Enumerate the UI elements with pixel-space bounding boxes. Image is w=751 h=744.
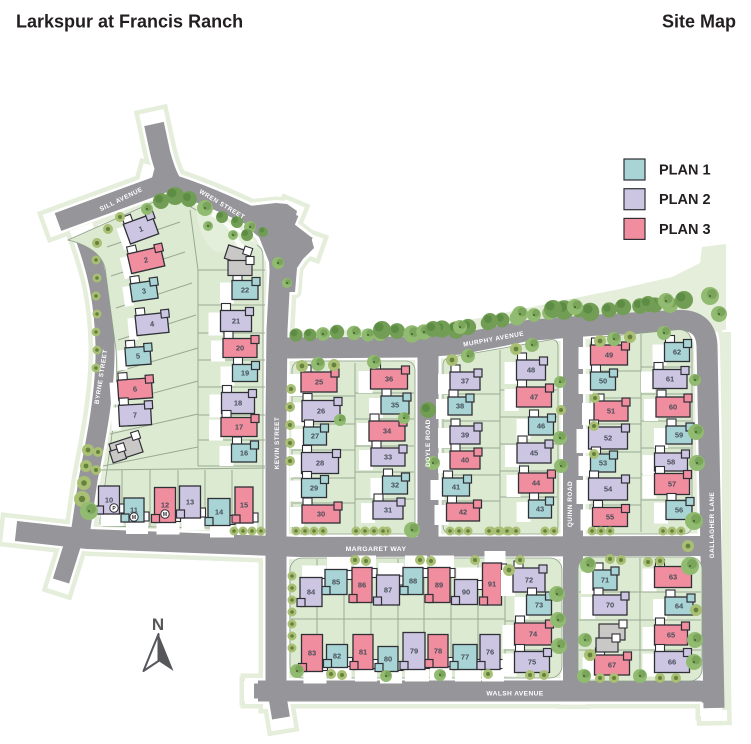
svg-text:15: 15 xyxy=(240,501,248,510)
svg-text:43: 43 xyxy=(536,505,544,514)
svg-text:63: 63 xyxy=(669,573,677,582)
svg-text:80: 80 xyxy=(384,655,392,664)
svg-text:67: 67 xyxy=(608,661,616,670)
svg-text:26: 26 xyxy=(317,407,325,416)
svg-text:18: 18 xyxy=(234,399,242,408)
svg-text:40: 40 xyxy=(461,456,469,465)
svg-text:59: 59 xyxy=(675,431,683,440)
svg-text:12: 12 xyxy=(161,501,169,510)
svg-text:37: 37 xyxy=(461,377,469,386)
svg-text:84: 84 xyxy=(307,588,316,597)
svg-text:78: 78 xyxy=(434,647,442,656)
svg-text:79: 79 xyxy=(410,647,418,656)
svg-text:61: 61 xyxy=(666,375,674,384)
svg-text:39: 39 xyxy=(461,431,469,440)
svg-text:KEVIN STREET: KEVIN STREET xyxy=(274,417,281,470)
svg-text:44: 44 xyxy=(532,479,541,488)
svg-text:62: 62 xyxy=(673,348,681,357)
svg-text:48: 48 xyxy=(527,366,535,375)
svg-text:MARGARET WAY: MARGARET WAY xyxy=(346,546,407,553)
svg-text:83: 83 xyxy=(308,649,316,658)
svg-text:85: 85 xyxy=(332,578,340,587)
svg-text:89: 89 xyxy=(435,581,443,590)
svg-text:91: 91 xyxy=(488,580,496,589)
svg-text:42: 42 xyxy=(459,508,467,517)
svg-text:19: 19 xyxy=(241,369,249,378)
svg-text:33: 33 xyxy=(384,453,392,462)
svg-text:81: 81 xyxy=(359,648,367,657)
svg-text:60: 60 xyxy=(669,403,677,412)
svg-text:17: 17 xyxy=(235,423,243,432)
svg-text:6: 6 xyxy=(133,384,138,393)
svg-text:56: 56 xyxy=(675,506,683,515)
svg-text:QUINN ROAD: QUINN ROAD xyxy=(567,481,574,527)
svg-text:71: 71 xyxy=(601,576,609,585)
svg-text:16: 16 xyxy=(240,449,248,458)
svg-text:32: 32 xyxy=(391,481,399,490)
svg-text:27: 27 xyxy=(311,432,319,441)
svg-text:DOYLE ROAD: DOYLE ROAD xyxy=(425,419,432,467)
svg-text:M: M xyxy=(132,515,136,521)
svg-text:31: 31 xyxy=(384,506,392,515)
svg-text:51: 51 xyxy=(607,407,615,416)
svg-text:28: 28 xyxy=(316,459,324,468)
svg-text:WALSH AVENUE: WALSH AVENUE xyxy=(486,691,543,698)
svg-text:74: 74 xyxy=(529,630,538,639)
svg-text:36: 36 xyxy=(385,375,393,384)
svg-text:GALLAGHER LANE: GALLAGHER LANE xyxy=(709,491,716,558)
svg-text:20: 20 xyxy=(236,344,244,353)
svg-text:72: 72 xyxy=(525,576,533,585)
svg-text:35: 35 xyxy=(391,401,399,410)
svg-text:53: 53 xyxy=(599,459,607,468)
svg-text:PLAN 1: PLAN 1 xyxy=(659,163,711,179)
svg-text:88: 88 xyxy=(409,577,417,586)
svg-text:90: 90 xyxy=(462,588,470,597)
svg-text:87: 87 xyxy=(384,586,392,595)
svg-text:49: 49 xyxy=(605,351,613,360)
svg-text:70: 70 xyxy=(606,601,614,610)
svg-text:75: 75 xyxy=(528,658,536,667)
svg-text:54: 54 xyxy=(604,485,613,494)
svg-text:22: 22 xyxy=(241,286,249,295)
svg-text:5: 5 xyxy=(136,351,141,360)
svg-text:M: M xyxy=(163,512,167,518)
svg-text:77: 77 xyxy=(461,653,469,662)
svg-text:25: 25 xyxy=(315,378,323,387)
svg-text:46: 46 xyxy=(537,422,545,431)
svg-text:66: 66 xyxy=(668,658,676,667)
svg-text:50: 50 xyxy=(599,377,607,386)
svg-text:45: 45 xyxy=(530,449,538,458)
svg-text:21: 21 xyxy=(232,317,240,326)
svg-text:86: 86 xyxy=(358,581,366,590)
svg-text:7: 7 xyxy=(133,410,138,419)
svg-text:10: 10 xyxy=(105,496,113,505)
svg-text:41: 41 xyxy=(452,483,460,492)
svg-text:14: 14 xyxy=(215,508,224,517)
svg-text:64: 64 xyxy=(675,602,684,611)
svg-text:76: 76 xyxy=(486,648,494,657)
svg-text:Site Map: Site Map xyxy=(662,12,736,32)
svg-text:38: 38 xyxy=(456,402,464,411)
svg-text:34: 34 xyxy=(383,427,392,436)
svg-text:30: 30 xyxy=(317,510,325,519)
svg-text:82: 82 xyxy=(333,652,341,661)
svg-text:29: 29 xyxy=(310,484,318,493)
svg-text:57: 57 xyxy=(668,480,676,489)
svg-text:73: 73 xyxy=(535,601,543,610)
svg-text:N: N xyxy=(152,615,164,634)
svg-text:PLAN 3: PLAN 3 xyxy=(659,222,711,238)
svg-text:65: 65 xyxy=(667,631,675,640)
svg-text:PLAN 2: PLAN 2 xyxy=(659,192,711,208)
svg-text:58: 58 xyxy=(667,458,675,467)
svg-text:52: 52 xyxy=(604,434,612,443)
svg-text:47: 47 xyxy=(530,393,538,402)
svg-text:Larkspur at Francis Ranch: Larkspur at Francis Ranch xyxy=(16,12,243,32)
svg-text:13: 13 xyxy=(186,498,194,507)
svg-text:55: 55 xyxy=(606,513,614,522)
